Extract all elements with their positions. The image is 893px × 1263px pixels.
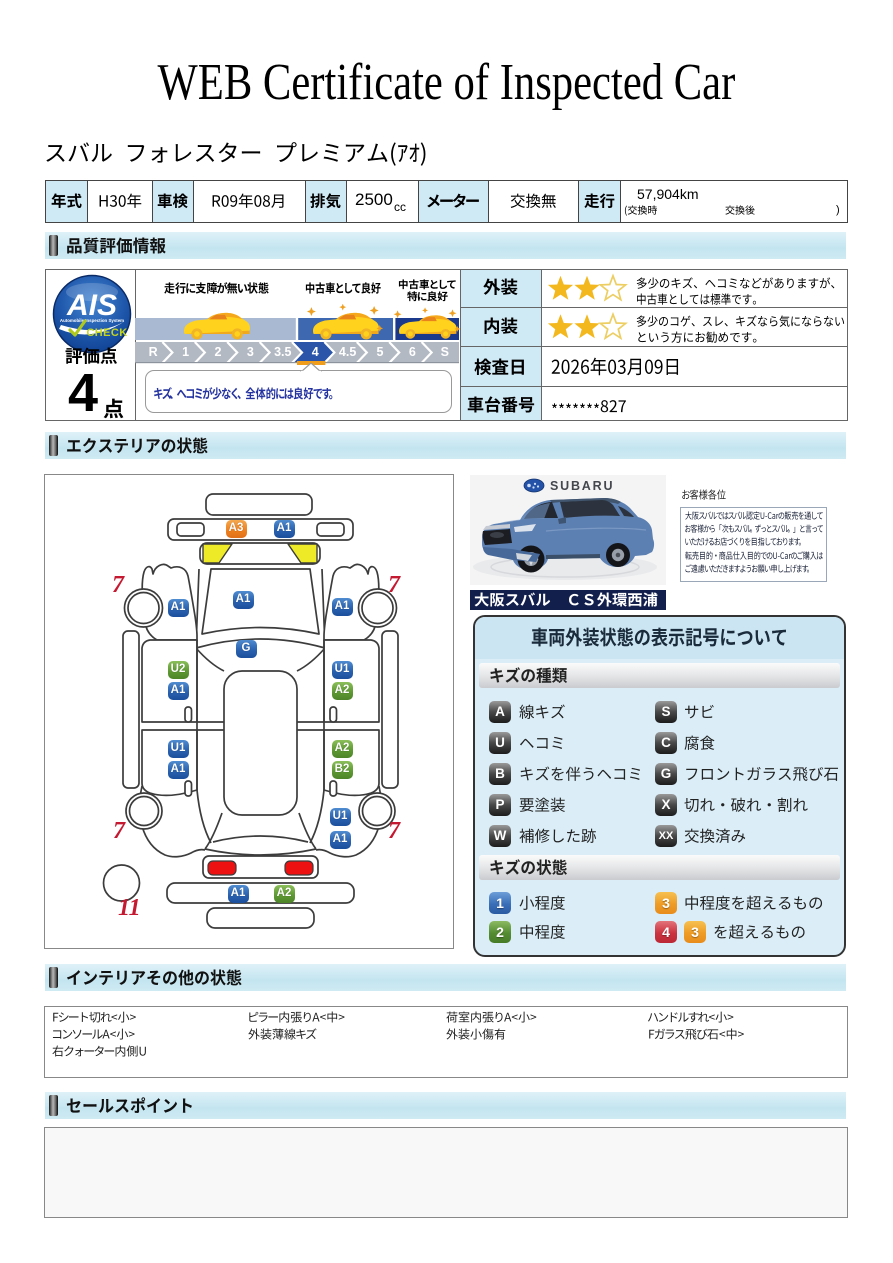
svg-text:Automobile Inspection System: Automobile Inspection System: [60, 318, 124, 323]
svg-text:SUBARU: SUBARU: [550, 479, 614, 493]
svg-text:CHECK: CHECK: [86, 327, 127, 339]
